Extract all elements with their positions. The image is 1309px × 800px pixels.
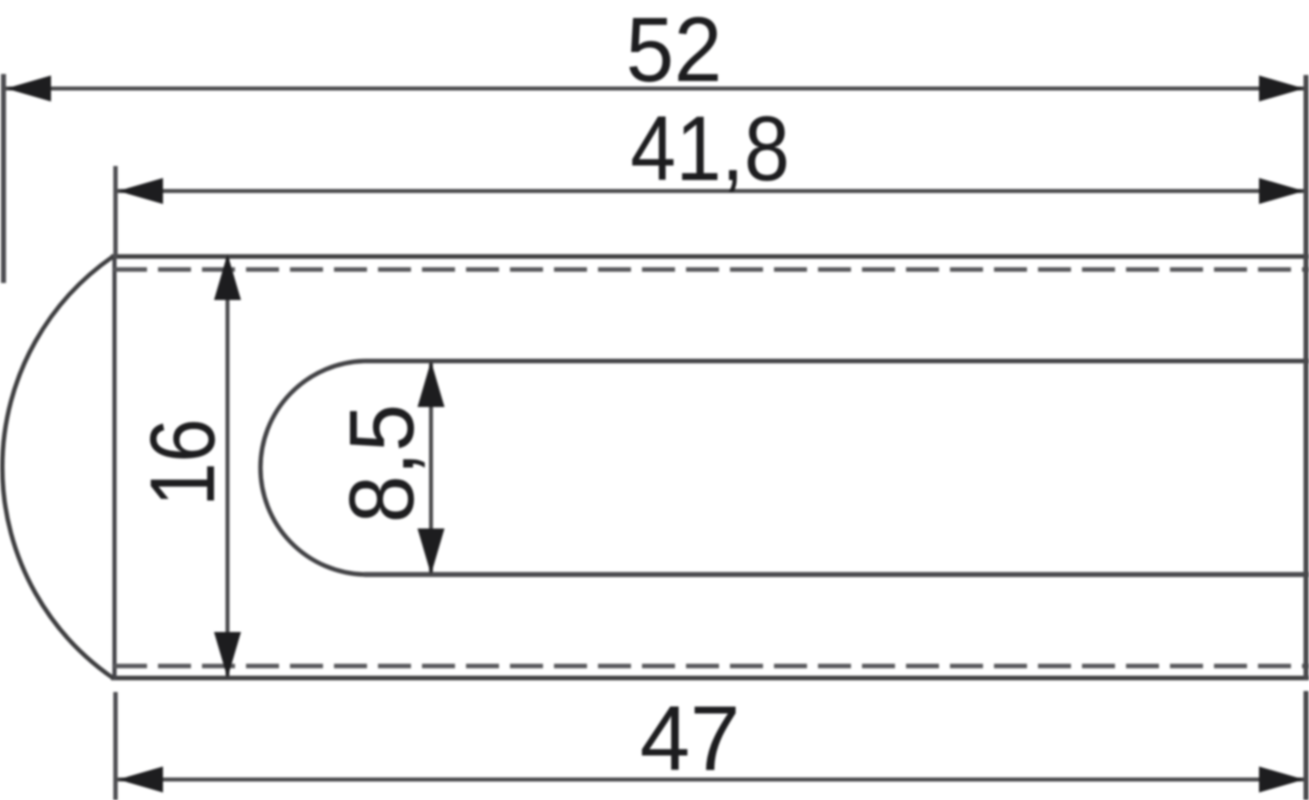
svg-text:8,5: 8,5 <box>330 404 433 523</box>
svg-text:16: 16 <box>131 418 234 506</box>
svg-text:47: 47 <box>640 688 740 790</box>
svg-text:52: 52 <box>626 0 722 101</box>
svg-text:41,8: 41,8 <box>630 98 789 200</box>
